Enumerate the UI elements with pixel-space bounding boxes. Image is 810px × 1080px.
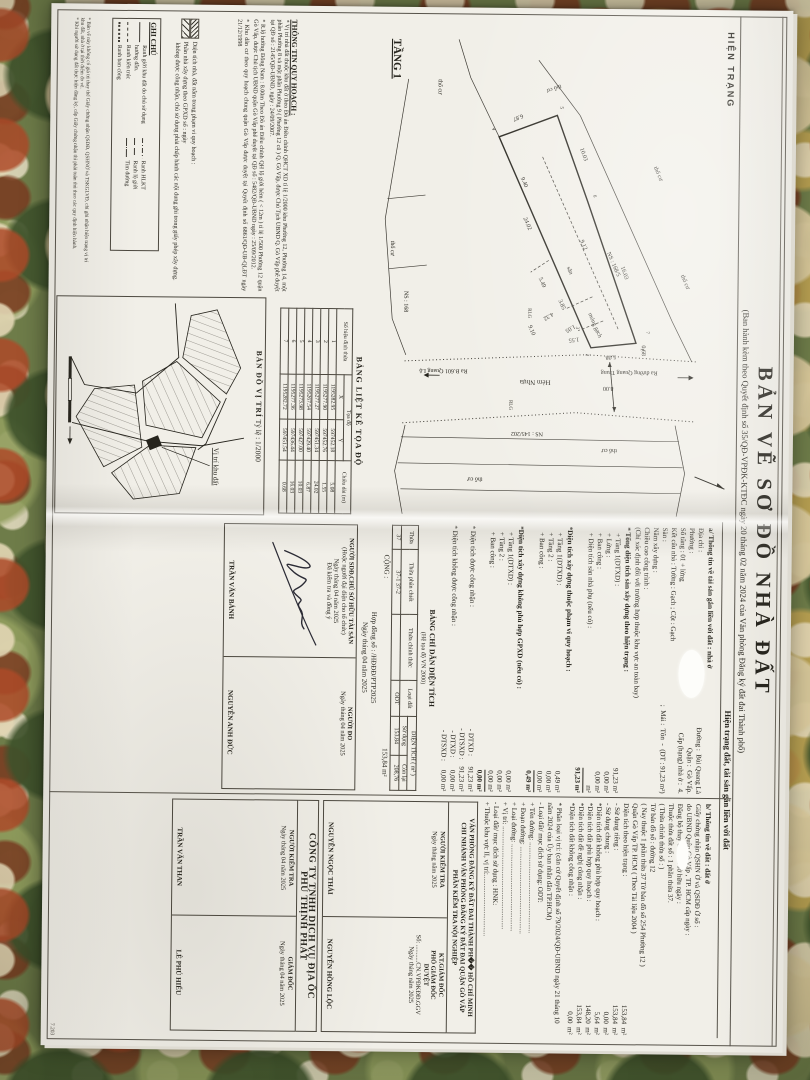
company-signature-table: NGƯỜI KIỂM TRA Ngày tháng 04 năm 2025 TR… [170,798,298,1031]
svg-text:thổ cư: thổ cư [679,274,692,291]
corner-note: 7.203 [49,1023,55,1035]
col-coord: Tọa độ [343,374,352,461]
hatch-legend: Diện tích nhà, đất nằm trong phạm vi quy… [170,18,199,290]
map-title-text: BẢN ĐỒ VỊ TRÍ [254,351,264,418]
coordinate-rows: 11195282.95597452.185.0821195277.9059745… [279,308,337,514]
svg-text:Vị trí khu đất: Vị trí khu đất [211,448,219,486]
map-scale-text: Tỷ lệ : 1/2000 [254,420,263,462]
office-checker-name: NGUYỄN NGỌC THÁI [325,801,335,916]
owner-name: TRẦN VĂN BÁNH [226,524,236,656]
office-checker-date: Ngày tháng năm 2025 [430,804,439,915]
cell-phanchiet: 37-1 37-2 [392,549,401,614]
company-director-cell: GIÁM ĐỐC Ngày tháng 04 năm 2025 LÊ PHÚ H… [171,915,296,1031]
svg-text:móng gạch: móng gạch [586,312,602,339]
cell-chinhthuc [391,615,400,681]
col-y: Y [335,420,343,461]
gpxd-area-lines: + Tầng 1(DTXD) :0,00 m²+ Tầng 2 :0,00 m²… [474,532,515,792]
col-phanchiet: Thửa phân chiết [401,550,419,615]
contract-line: Hợp đồng số : /HĐĐĐ/PTP2025 Ngày tháng 0… [359,524,380,790]
section-a-column: a/ Thông tin về tài sản gắn liền với đất… [222,523,716,794]
hatch-dense-swatch [190,19,199,39]
site-plan-drawing: TẦNG 15.081.5524.026.8710.0316.030.689.1… [362,18,739,519]
hatch-light-swatch [181,19,190,39]
svg-text:5.49: 5.49 [537,277,547,289]
coordinate-table-block: BẢNG LIỆT KÊ TỌA ĐỘ Số hiệu đỉnh thửa Tọ… [278,308,364,515]
col-point: Số hiệu đỉnh thửa [336,309,353,375]
section-b-lines: Giấy chứng nhận QSHN Ở và QSDĐ Ở số :do … [565,803,702,1036]
svg-text:24.02: 24.02 [521,217,532,232]
cadastral-document-sheet: BẢN VẼ SƠ ĐỒ NHÀ ĐẤT (Ban hành kèm theo … [41,3,794,1053]
company-checker-role: NGƯỜI KIỂM TRA [286,803,295,914]
svg-text:4.32: 4.32 [542,311,554,321]
surveyor-signature-cell: NGƯỜI ĐO Ngày tháng 04 năm 2025 NGUYỄN A… [223,656,356,789]
office-director-role1: KT.GIÁM ĐỐC [436,920,445,1031]
surveyor-date: Ngày tháng 04 năm 2025 [338,660,347,788]
col-chinhthuc: Thửa chính thức [400,615,418,681]
recognized-area-lines: * Diện tích được công nhận :- DTXD : 91,… [438,525,477,791]
col-x: X [336,374,344,419]
svg-text:thổ cư: thổ cư [601,447,617,454]
notes-box-title: GHI CHÚ [149,22,158,55]
col-sudung: Sử dụng [399,716,408,755]
svg-text:thổ cư: thổ cư [652,165,665,182]
svg-text:1.55: 1.55 [568,336,579,343]
office-director-number: Số: ...........CN.VPĐKĐĐ.GGV [413,919,422,1030]
section-b-column: b/ Thông tin về đất : đất ở Giấy chứng n… [170,798,713,1036]
col-loaidat: Loại đất [400,681,417,717]
location-map-svg: Vị trí khu đất [63,296,255,512]
location-map-box: BẢN ĐỒ VỊ TRÍ Tỷ lệ : 1/2000 [54,295,266,515]
planning-info-header: THÔNG TIN QUY HOẠCH : [287,20,299,292]
drawing-half: TẦNG 15.081.5524.026.8710.0316.030.689.1… [52,13,739,520]
svg-text:9.10: 9.10 [526,325,536,337]
section-a-header: a/ Thông tin về tài sản gắn liền với đất… [703,528,715,794]
svg-text:Hẻm Nhựa: Hẻm Nhựa [519,378,551,386]
svg-text:9.12: 9.12 [578,239,588,251]
company-signature-header: CÔNG TY TNHH DỊCH VỤ ĐỊA ỐC PHÚ THỊNH PH… [296,800,319,1032]
svg-text:Ra đường Quang Trung: Ra đường Quang Trung [601,369,658,376]
notes-legend-left: Ranh giới khu đất do chủ sử dụng hướng d… [114,22,148,132]
svg-text:6.87: 6.87 [512,112,524,121]
company-director-name: LÊ PHÚ HIẾU [173,915,183,1030]
svg-text:4: 4 [490,128,495,131]
fine-print-notes: * Bản vẽ này không có giá trị thay thế G… [67,17,91,267]
notes-legend-right: Ranh HLKTRanh lộ giớiTim đường [113,137,147,247]
svg-text:TẦNG 1: TẦNG 1 [391,39,404,79]
owner-date: Ngày tháng 04 năm 2025 [331,527,340,655]
svg-text:10.03: 10.03 [578,147,588,162]
col-conlai: Còn lại [399,755,408,790]
hatch-legend-line1: Diện tích nhà, đất nằm trong phạm vi quy… [189,42,198,165]
office-checker-role: NGƯỜI KIỂM TRA [437,804,446,915]
svg-text:thổ cư: thổ cư [437,79,444,95]
col-thua: Thửa [401,525,418,549]
office-director-role2: PHÓ GIÁM ĐỐC [429,920,438,1031]
svg-text:NS : 145/202: NS : 145/202 [511,430,543,436]
office-director-cell: KT.GIÁM ĐỐC PHÓ GIÁM ĐỐC DUYỆT Số: .....… [322,917,447,1033]
svg-text:8.00: 8.00 [603,385,614,391]
notes-legend-box: GHI CHÚ Ranh giới khu đất do chủ sử dụng… [110,18,161,251]
owner-surveyor-signature-table: NGƯỜI SDĐ,CHỦ SỞ HỮU TÀI SẢN (Hoặc người… [222,523,359,790]
office-signature-table: NGƯỜI KIỂM TRA Ngày tháng năm 2025 NGUYỄ… [321,800,449,1033]
svg-text:thổ cư: thổ cư [389,241,396,257]
office-checker-cell: NGƯỜI KIỂM TRA Ngày tháng năm 2025 NGUYỄ… [323,801,448,918]
svg-text:RLG: RLG [526,308,531,318]
surveyor-role: NGƯỜI ĐO [345,660,354,788]
svg-text:7: 7 [644,331,649,334]
coordinate-table: Số hiệu đỉnh thửa Tọa độ Chiều dài (m) X… [278,308,353,515]
office-director-approve: DUYỆT [421,920,430,1031]
company-director-role: GIÁM ĐỐC [285,918,294,1029]
cell-loaidat: ODT [391,681,400,717]
company-checker-cell: NGƯỜI KIỂM TRA Ngày tháng 04 năm 2025 TR… [172,799,297,916]
owner-role: NGƯỜI SDĐ,CHỦ SỞ HỮU TÀI SẢN [347,527,356,655]
svg-text:RLG: RLG [507,400,512,410]
cell-sudung: 153,84 [391,716,400,755]
owner-signature-cell: NGƯỜI SDĐ,CHỦ SỞ HỮU TÀI SẢN (Hoặc người… [224,524,357,658]
cong-label: CỘNG : [382,555,391,579]
classification-lines: * Phân loại vị trí: (căn cứ Quyết định s… [480,802,563,1035]
cong-value: 153,84 m² [380,748,389,777]
section-b-header: b/ Thông tin về đất : đất ở [701,804,712,1036]
floor-total-lines: + Tầng 1(DTXD) :91,23 m²+ Lửng :0,00 m²+… [572,533,622,793]
site-plan-svg: TẦNG 15.081.5524.026.8710.0316.030.689.1… [362,18,739,519]
planning-info-block: THÔNG TIN QUY HOẠCH : * Vị trí nhà đất t… [230,19,299,292]
office-signature-header: VĂN PHÒNG ĐĂNG KÝ ĐẤT ĐAI THÀNH PH�� HỒ … [447,801,478,1033]
svg-text:thổ cư: thổ cư [467,476,483,483]
form-half: Hiện trạng đất, tài sản gắn liền với đất… [47,515,734,1042]
svg-text:sân: sân [565,266,574,276]
svg-text:5.08: 5.08 [605,353,616,360]
svg-text:3.85: 3.85 [557,299,567,311]
cell-thua: 37 [393,525,402,549]
company-director-date: Ngày tháng 04 năm 2025 [278,918,287,1029]
svg-text:2: 2 [584,354,589,357]
svg-text:thổ cư: thổ cư [545,83,562,95]
area-table: Thửa Thửa phân chiết Thửa chính thức Loạ… [390,525,419,791]
handwritten-signature [266,532,325,653]
company-checker-name: TRẦN VĂN THAN [174,799,184,914]
area-table-block: BẢNG CHỈ DẪN DIỆN TÍCH (Hệ tọa độ VN 200… [380,525,438,792]
svg-text:NS : 168: NS : 168 [402,291,408,312]
surveyor-name: NGUYỄN ANH ĐỨC [225,657,235,789]
company-checker-date: Ngày tháng 04 năm 2025 [279,803,288,914]
svg-text:6: 6 [591,195,596,198]
svg-text:Ra B.601 Quang Lộ: Ra B.601 Quang Lộ [419,367,467,374]
cell-conlai: 208,76 [390,755,399,790]
qh-area-lines: + Tầng 1(DTXD) :0,49 m²+ Tầng 2 :0,00 m²… [523,532,564,792]
col-length: Chiều dài (m) [335,461,352,514]
svg-text:5: 5 [558,106,563,109]
planning-info-bullets: * Vị trí nhà đất thuộc khu đất ở theo Đồ… [232,19,289,292]
col-dientich: DIỆN TÍCH ( m² ) [407,716,416,790]
hatch-legend-line2: Phần nhà xây dựng theo GPXD số : ngày [181,42,190,144]
office-director-name: NGUYỄN HỒNG LỘC [324,917,334,1032]
